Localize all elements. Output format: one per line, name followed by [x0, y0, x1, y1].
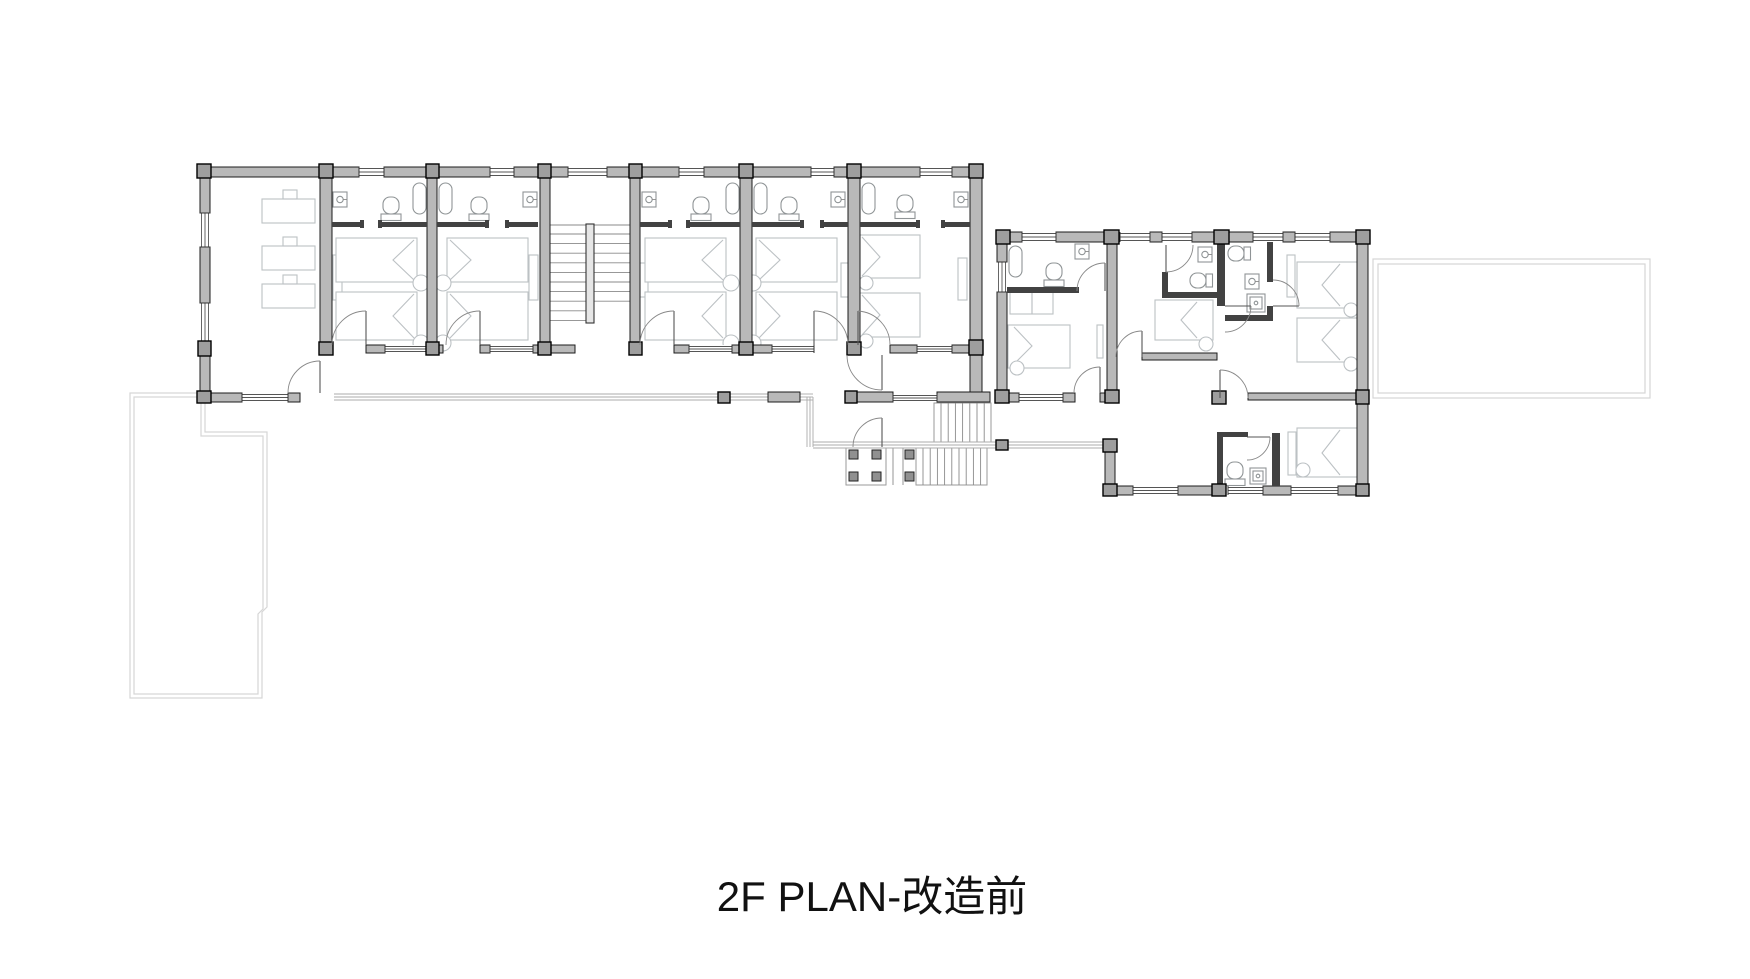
stool: [1344, 357, 1358, 371]
bed: [447, 292, 528, 340]
bed: [1297, 262, 1358, 308]
wall: [332, 167, 359, 177]
column: [996, 230, 1010, 244]
wall: [1063, 393, 1075, 402]
bed: [336, 238, 417, 282]
wall: [674, 345, 689, 353]
cabinet: [1288, 432, 1296, 475]
wall: [704, 167, 740, 177]
porch-post: [849, 472, 858, 481]
wall: [288, 393, 300, 402]
porch-post: [905, 450, 914, 459]
door-jamb: [360, 220, 364, 228]
column: [1103, 484, 1117, 496]
wall: [1338, 486, 1357, 495]
wall: [540, 177, 550, 353]
ground-floor-outline: [134, 397, 263, 694]
partition-wall: [1162, 292, 1217, 298]
door-jamb: [800, 220, 804, 228]
bed: [756, 238, 837, 282]
column: [1212, 391, 1226, 404]
column: [969, 340, 983, 355]
wall: [937, 392, 990, 402]
wall: [1117, 486, 1133, 495]
plan-title: 2F PLAN-改造前: [717, 863, 1027, 924]
bed: [645, 292, 726, 340]
stool: [1010, 361, 1024, 375]
door-swing: [1074, 367, 1100, 393]
partition-wall: [752, 222, 804, 227]
wall: [427, 177, 437, 353]
wall: [1150, 232, 1162, 242]
partition-wall: [332, 222, 362, 227]
column: [1104, 230, 1119, 244]
toilet-tank: [691, 214, 711, 221]
stool: [723, 275, 739, 291]
office-chair: [283, 275, 297, 284]
toilet: [1228, 246, 1244, 261]
wall: [200, 177, 210, 213]
wall: [834, 167, 848, 177]
toilet: [471, 197, 487, 214]
wall: [1330, 232, 1357, 242]
column: [319, 342, 333, 355]
door-swing: [1247, 437, 1270, 460]
column: [847, 164, 861, 178]
wall: [550, 345, 575, 353]
bathtub: [1009, 246, 1022, 277]
toilet-tank: [469, 214, 489, 221]
wall: [1009, 393, 1019, 402]
wall: [740, 177, 752, 353]
partition-wall: [822, 222, 848, 227]
wall: [439, 167, 490, 177]
wall: [550, 167, 568, 177]
terrace-outline: [1373, 259, 1650, 398]
partition-wall: [1162, 272, 1168, 298]
sink-drain: [337, 196, 343, 202]
partition-wall: [380, 222, 427, 227]
toilet-tank: [1206, 274, 1213, 287]
wall: [640, 167, 679, 177]
office-chair: [283, 237, 297, 246]
porch-post: [905, 472, 914, 481]
partition-wall: [507, 222, 538, 227]
wall: [768, 392, 800, 402]
wall: [607, 167, 630, 177]
cabinet: [1032, 292, 1053, 314]
column: [426, 342, 439, 355]
cabinet: [1010, 292, 1032, 314]
wall: [480, 345, 490, 353]
bathtub: [726, 183, 739, 214]
wall: [752, 167, 811, 177]
bathtub: [439, 183, 452, 214]
office-desk: [262, 199, 315, 223]
door-jamb: [820, 220, 824, 228]
column: [845, 391, 857, 403]
wall: [1283, 232, 1295, 242]
partition-wall: [437, 222, 489, 227]
toilet-tank: [1225, 479, 1245, 486]
column: [1356, 484, 1369, 496]
wall: [200, 247, 210, 303]
column: [538, 342, 551, 355]
cabinet: [1097, 325, 1103, 358]
sink-drain: [835, 196, 841, 202]
toilet-tank: [1044, 280, 1064, 287]
wall: [890, 345, 917, 353]
cabinet: [958, 258, 967, 300]
wall: [997, 242, 1007, 262]
office-desk: [262, 284, 315, 308]
column: [1356, 230, 1370, 244]
wall: [997, 292, 1007, 392]
door-swing: [1116, 331, 1142, 357]
column: [1356, 390, 1369, 404]
porch-post: [872, 450, 881, 459]
sink-drain: [958, 196, 964, 202]
toilet-tank: [779, 214, 799, 221]
office-desk: [262, 246, 315, 270]
wall: [1010, 232, 1022, 242]
porch-post: [849, 450, 858, 459]
toilet: [693, 197, 709, 214]
partition-wall: [1217, 242, 1225, 306]
door-swing: [1166, 245, 1193, 272]
door-jamb: [505, 220, 509, 228]
partition-wall: [688, 222, 740, 227]
door-swing: [847, 355, 882, 390]
bathtub: [862, 183, 875, 214]
bed: [645, 238, 726, 282]
sink-drain: [527, 196, 533, 202]
toilet-tank: [895, 212, 915, 219]
toilet-tank: [381, 214, 401, 221]
toilet: [1227, 462, 1243, 479]
wall: [320, 177, 332, 353]
bathtub: [754, 183, 767, 214]
column: [319, 164, 333, 178]
wall: [1229, 232, 1253, 242]
wall: [1142, 353, 1217, 360]
wall: [1263, 486, 1291, 495]
door-swing: [288, 361, 320, 393]
column: [995, 390, 1009, 403]
column: [1212, 484, 1226, 496]
door-jamb: [668, 220, 672, 228]
toilet: [897, 195, 913, 212]
partition-wall: [1007, 287, 1079, 293]
partition-wall: [1267, 242, 1273, 282]
wall: [1357, 242, 1368, 486]
wall: [1056, 232, 1105, 242]
column: [197, 391, 211, 403]
column: [197, 164, 211, 178]
sink-drain: [1249, 278, 1255, 284]
column: [718, 392, 730, 403]
toilet: [383, 197, 399, 214]
floor-plan-canvas: [0, 0, 1750, 979]
door-jamb: [485, 220, 489, 228]
column: [847, 342, 861, 355]
partition-wall: [943, 222, 970, 227]
partition-wall: [1217, 432, 1248, 437]
bed: [858, 293, 920, 337]
column: [1103, 439, 1117, 452]
toilet: [1046, 263, 1062, 280]
column: [969, 164, 983, 178]
door-jamb: [378, 220, 382, 228]
shower-drain: [1256, 474, 1260, 478]
ground-floor-outline: [130, 393, 267, 698]
partition-wall: [1217, 437, 1223, 486]
wall: [1107, 242, 1117, 392]
sink-drain: [1202, 251, 1208, 257]
sink-drain: [1079, 248, 1085, 254]
porch-post: [872, 472, 881, 481]
partition-wall: [860, 222, 918, 227]
stair-stringer: [586, 224, 594, 323]
bed: [1297, 318, 1358, 362]
stool: [1296, 463, 1310, 477]
column: [1214, 230, 1229, 244]
toilet: [1190, 273, 1206, 288]
office-chair: [283, 190, 297, 199]
wall: [1192, 232, 1215, 242]
column: [538, 164, 551, 178]
column: [198, 341, 211, 356]
floor-plan-page: 2F PLAN-改造前: [0, 0, 1750, 979]
bed: [858, 235, 920, 278]
door-jamb: [941, 220, 945, 228]
column: [739, 342, 753, 355]
bed: [447, 238, 528, 282]
stool: [1344, 303, 1358, 317]
stool: [1199, 337, 1213, 351]
wall: [1178, 486, 1212, 495]
door-jamb: [686, 220, 690, 228]
wall: [952, 345, 970, 353]
wall: [210, 167, 320, 177]
wall: [514, 167, 538, 177]
cabinet: [529, 255, 538, 300]
toilet: [781, 197, 797, 214]
partition-wall: [1272, 433, 1280, 486]
wall: [860, 167, 920, 177]
wall: [630, 177, 640, 353]
door-jamb: [916, 220, 920, 228]
column: [629, 164, 642, 178]
column: [1105, 390, 1119, 403]
shower-drain: [1254, 301, 1258, 305]
wall: [1248, 393, 1360, 400]
wall: [970, 177, 982, 402]
door-swing: [853, 418, 882, 447]
toilet-tank: [1244, 247, 1251, 260]
terrace-outline: [1378, 264, 1645, 393]
wall: [384, 167, 427, 177]
bed: [756, 292, 837, 340]
sink-drain: [646, 196, 652, 202]
partition-wall: [640, 222, 670, 227]
wall: [366, 345, 385, 353]
column: [739, 164, 753, 178]
wall: [752, 345, 772, 353]
column: [426, 164, 439, 178]
bed: [1155, 300, 1213, 340]
door-swing: [1077, 263, 1105, 291]
bathtub: [413, 183, 426, 214]
stool: [859, 276, 873, 290]
column: [996, 440, 1008, 450]
